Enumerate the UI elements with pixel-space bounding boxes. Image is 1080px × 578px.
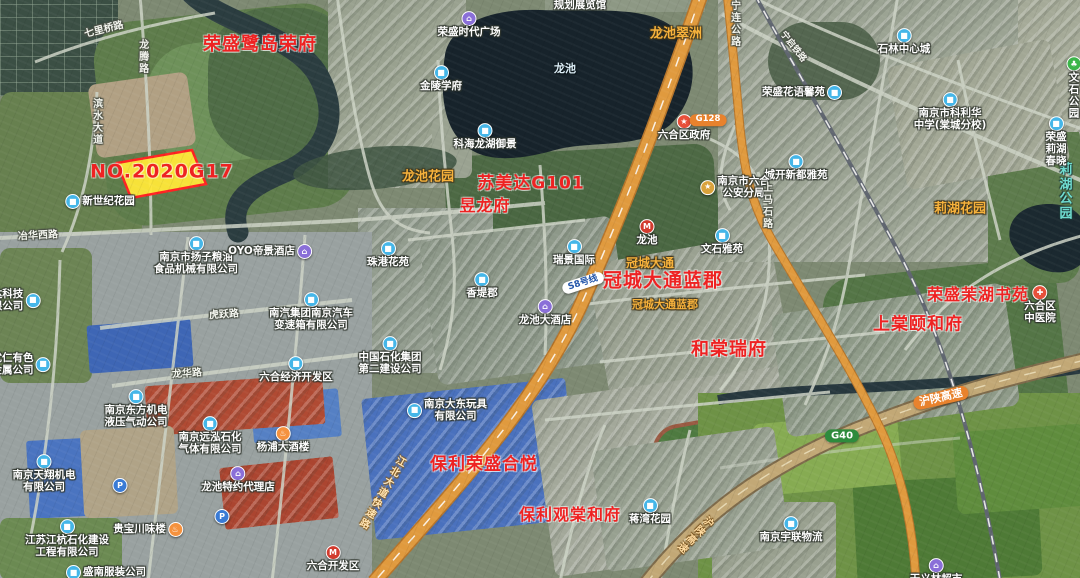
estate-yulongfu-text: 昱龙府: [459, 197, 510, 215]
parking-icon[interactable]: P: [215, 509, 230, 524]
building-icon[interactable]: ■: [66, 565, 81, 578]
estate-rongsheng-ludao-rongfu: 荣盛鹭岛荣府: [203, 35, 317, 55]
building-icon[interactable]: ■: [715, 228, 730, 243]
area-longchi-cuizhou[interactable]: 龙池翠洲: [650, 28, 702, 43]
area-guancheng-datong-text: 冠城大通: [626, 257, 674, 271]
road-shangmashi-lu: 上马石路: [760, 182, 771, 230]
poi-luhe-district-government-text: 六合区政府: [658, 130, 711, 142]
poi-rongsheng-lihu-chunxiao-text: 荣盛莉湖春晓: [1044, 132, 1068, 168]
badge-g128: G128: [690, 114, 727, 126]
area-longchi-huayuan[interactable]: 龙池花园: [402, 171, 454, 186]
satellite-map: 荣盛鹭岛荣府NO.2020G17苏美达G101昱龙府冠城大通蓝郡和棠瑞府荣盛茉湖…: [0, 0, 1080, 578]
building-icon[interactable]: ■: [942, 92, 957, 107]
metro-longchi-station-text: 龙池: [637, 235, 658, 247]
poi-rongsheng-huayu-xinyuan-text: 荣盛花语馨苑: [762, 87, 825, 99]
hotel-icon[interactable]: ⌂: [297, 244, 312, 259]
shop-icon[interactable]: ⌂: [231, 466, 246, 481]
estate-rongsheng-ludao-rongfu-text: 荣盛鹭岛荣府: [203, 35, 317, 55]
building-icon[interactable]: ■: [827, 85, 842, 100]
estate-sumeida-g101-text: 苏美达G101: [477, 174, 584, 193]
poi-yangpu-dajiulou-text: 杨浦大酒楼: [257, 442, 310, 454]
metro-longchi-station[interactable]: M龙池: [637, 219, 658, 247]
poi-youren-youse-jinshu-text: 优仁有色 金属公司: [0, 353, 34, 377]
poi-youren-youse-jinshu[interactable]: ■优仁有色 金属公司: [0, 353, 51, 377]
building-icon[interactable]: ■: [567, 239, 582, 254]
building-icon[interactable]: ■: [189, 236, 204, 251]
poi-tianyilin-chaoshi[interactable]: ⌂天义林超市: [910, 558, 963, 578]
estate-rongsheng-mohu-shuyuan: 荣盛茉湖书苑: [927, 286, 1029, 304]
metro-icon[interactable]: M: [640, 219, 655, 234]
building-icon[interactable]: ■: [36, 357, 51, 372]
restaurant-icon[interactable]: ♨: [168, 522, 183, 537]
poi-dongfang-jidian[interactable]: ■南京东方机电 液压气动公司: [105, 389, 168, 429]
poi-yulian-wuliu[interactable]: ■南京宇联物流: [760, 516, 823, 544]
poi-wenshi-gongyuan[interactable]: ♣文石公园: [1067, 56, 1080, 119]
shop-icon[interactable]: ⌂: [462, 11, 477, 26]
poi-parking-1[interactable]: P: [113, 478, 128, 494]
poi-longchi-teyue-dailidian-text: 龙池特约代理店: [201, 482, 275, 494]
poi-yuanhong-shihua[interactable]: ■南京远泓石化 气体有限公司: [179, 416, 242, 456]
poi-wenshi-yayuan-text: 文石雅苑: [701, 244, 743, 256]
building-icon[interactable]: ■: [289, 356, 304, 371]
estate-baoli-rongsheng-heyue-text: 保利荣盛合悦: [430, 455, 538, 474]
area-guancheng-datong-lanjun-small[interactable]: 冠城大通蓝郡: [632, 299, 698, 311]
poi-shengnan-fuzhuang-text: 盛南服装公司: [83, 567, 146, 578]
road-longteng-lu-text: 龙腾路: [136, 39, 147, 75]
hotel-icon[interactable]: ⌂: [538, 299, 553, 314]
park-lihu-gongyuan[interactable]: 莉湖公园: [1059, 164, 1073, 223]
building-icon[interactable]: ■: [304, 292, 319, 307]
poi-tianyilin-chaoshi-text: 天义林超市: [910, 574, 963, 578]
badge-s8-line-text: S8号线: [567, 273, 599, 292]
road-huyue-lu-text: 虎跃路: [209, 308, 240, 321]
estate-baoli-guantang-hefu: 保利观棠和府: [519, 506, 621, 524]
poi-tianxiang-jidian-text: 南京天翔机电 有限公司: [13, 470, 76, 494]
road-hushan-expwy-west: 沪陕高速: [673, 513, 715, 555]
estate-hetang-ruifu-text: 和棠瑞府: [691, 340, 767, 360]
road-ningqi-railway: 宁启铁路: [778, 30, 808, 65]
estate-baoli-rongsheng-heyue: 保利荣盛合悦: [430, 455, 538, 474]
road-binshui-dadao: 滨水大道: [90, 98, 101, 146]
area-guancheng-datong[interactable]: 冠城大通: [626, 257, 674, 271]
poi-shilin-zhongxincheng[interactable]: ■石林中心城: [878, 28, 931, 56]
poi-xinshiji-huayuan[interactable]: ■新世纪花园: [65, 194, 135, 210]
building-icon[interactable]: ■: [478, 123, 493, 138]
area-guancheng-datong-lanjun-small-text: 冠城大通蓝郡: [632, 299, 698, 311]
road-shangmashi-lu-text: 上马石路: [760, 182, 771, 230]
area-longchi-huayuan-text: 龙池花园: [402, 171, 454, 186]
poi-jianghang-shihua-text: 江苏江杭石化建设 工程有限公司: [25, 535, 109, 559]
road-binshui-dadao-text: 滨水大道: [90, 98, 101, 146]
building-icon[interactable]: ■: [37, 454, 52, 469]
poi-tianxiang-jidian[interactable]: ■南京天翔机电 有限公司: [13, 454, 76, 494]
building-icon[interactable]: ■: [407, 403, 422, 418]
road-qiliqiao-lu: 七里桥路: [83, 20, 125, 41]
poi-ruijing-guoji-text: 瑞景国际: [553, 255, 595, 267]
badge-g40-text: G40: [831, 430, 853, 441]
shop-icon[interactable]: ⌂: [929, 558, 944, 573]
road-qiliqiao-lu-text: 七里桥路: [83, 20, 125, 41]
badge-g40: G40: [825, 429, 859, 442]
poi-wenshi-gongyuan-text: 文石公园: [1067, 72, 1080, 119]
building-icon[interactable]: ■: [897, 28, 912, 43]
poi-oyo-dijing-hotel-text: OYO帝景酒店: [228, 246, 295, 258]
poi-kehai-longhu-yujing-text: 科海龙湖御景: [454, 139, 517, 151]
poi-luhe-gongan-fenju[interactable]: ★南京市六合 公安分局: [700, 176, 770, 200]
poi-luhe-zhongyiyuan[interactable]: ✚六合区 中医院: [1024, 285, 1056, 325]
poi-yangpu-dajiulou[interactable]: ♨杨浦大酒楼: [257, 426, 310, 454]
building-icon[interactable]: ■: [381, 241, 396, 256]
poi-guihua-zhanlanguan-text: 规划展览馆: [554, 0, 607, 12]
poi-luhe-jingji-kaifaqu-text: 六合经济开发区: [259, 372, 333, 384]
badge-hushan-expressway-text: 沪陕高速: [918, 387, 964, 409]
building-icon[interactable]: ■: [784, 516, 799, 531]
area-lihu-huayuan-text: 莉湖花园: [934, 203, 986, 218]
building-icon[interactable]: ■: [1049, 116, 1064, 131]
poi-chengkai-xindu-yayuan-text: 城开新都雅苑: [765, 170, 828, 182]
poi-xinshiji-huayuan-text: 新世纪花园: [82, 196, 135, 208]
estate-shangtang-yihefu: 上棠颐和府: [873, 315, 963, 334]
road-longteng-lu: 龙腾路: [136, 39, 147, 75]
poi-yulian-wuliu-text: 南京宇联物流: [760, 532, 823, 544]
poi-dongfang-jidian-text: 南京东方机电 液压气动公司: [105, 405, 168, 429]
building-icon[interactable]: ■: [129, 389, 144, 404]
road-huyue-lu: 虎跃路: [209, 308, 240, 321]
estate-yulongfu: 昱龙府: [459, 197, 510, 215]
poi-guibao-chuanweilou[interactable]: ♨贵宝川味楼: [113, 522, 183, 538]
road-ningqi-railway-text: 宁启铁路: [778, 30, 808, 65]
poi-rongsheng-huayu-xinyuan[interactable]: ■荣盛花语馨苑: [762, 85, 842, 101]
building-icon[interactable]: ■: [25, 293, 40, 308]
road-ninglian-gonglu: 宁连公路: [728, 0, 739, 48]
poi-jiangwan-huayuan-text: 蒋湾花园: [629, 514, 671, 526]
building-icon[interactable]: ■: [475, 272, 490, 287]
road-ninglian-gonglu-text: 宁连公路: [728, 0, 739, 48]
map-labels: 荣盛鹭岛荣府NO.2020G17苏美达G101昱龙府冠城大通蓝郡和棠瑞府荣盛茉湖…: [0, 0, 1080, 578]
poi-yangzi-liangyou-text: 南京市扬子粮油 食品机械有限公司: [154, 252, 238, 276]
poi-kelihua-middle-school-text: 南京市科利华 中学(棠城分校): [914, 108, 987, 132]
poi-yuanhong-shihua-text: 南京远泓石化 气体有限公司: [179, 432, 242, 456]
building-icon[interactable]: ■: [60, 519, 75, 534]
building-icon[interactable]: ■: [65, 194, 80, 209]
poi-jinling-xuefu[interactable]: ■金陵学府: [420, 65, 462, 93]
poi-rongsheng-shidai-guangchang[interactable]: ⌂荣盛时代广场: [438, 11, 501, 39]
park-icon[interactable]: ♣: [1067, 56, 1080, 71]
estate-rongsheng-mohu-shuyuan-text: 荣盛茉湖书苑: [927, 286, 1029, 304]
road-longhua-lu: 龙华路: [172, 367, 203, 380]
poi-jiangwan-huayuan[interactable]: ■蒋湾花园: [629, 498, 671, 526]
road-longhua-lu-text: 龙华路: [172, 367, 203, 380]
badge-hushan-expressway: 沪陕高速: [912, 385, 970, 412]
water-longchi-lake: 龙池: [554, 63, 576, 75]
estate-sumeida-g101: 苏美达G101: [477, 174, 584, 193]
poi-wenshi-yayuan[interactable]: ■文石雅苑: [701, 228, 743, 256]
poi-parking-2[interactable]: P: [215, 509, 230, 525]
building-icon[interactable]: ■: [434, 65, 449, 80]
metro-luhe-kaifaqu-station-text: 六合开发区: [307, 561, 360, 573]
poi-xunda-keji-clipped[interactable]: ■达科技 限公司: [0, 289, 40, 313]
estate-parcel-no2020g17: NO.2020G17: [90, 161, 234, 182]
restaurant-icon[interactable]: ♨: [276, 426, 291, 441]
road-yehua-xilu: 冶华西路: [18, 229, 59, 242]
estate-baoli-guantang-hefu-text: 保利观棠和府: [519, 506, 621, 524]
poi-dadong-wanju-text: 南京大东玩具 有限公司: [424, 399, 487, 423]
estate-guancheng-datong-lanjun: 冠城大通蓝郡: [603, 270, 723, 291]
estate-parcel-no2020g17-text: NO.2020G17: [90, 161, 234, 182]
poi-shengnan-fuzhuang[interactable]: ■盛南服装公司: [66, 565, 146, 578]
poi-jinling-xuefu-text: 金陵学府: [420, 81, 462, 93]
poi-jianghang-shihua[interactable]: ■江苏江杭石化建设 工程有限公司: [25, 519, 109, 559]
poi-luhe-jingji-kaifaqu[interactable]: ■六合经济开发区: [259, 356, 333, 384]
area-longchi-cuizhou-text: 龙池翠洲: [650, 28, 702, 43]
poi-chengkai-xindu-yayuan[interactable]: ■城开新都雅苑: [765, 154, 828, 182]
badge-s8-line: S8号线: [561, 271, 605, 296]
poi-zhongguo-shihua-dier[interactable]: ■中国石化集团 第二建设公司: [359, 336, 422, 376]
poi-zhugang-huayuan-text: 珠港花苑: [367, 257, 409, 269]
poi-ruijing-guoji[interactable]: ■瑞景国际: [553, 239, 595, 267]
water-longchi-lake-text: 龙池: [554, 63, 576, 75]
metro-icon[interactable]: M: [326, 545, 341, 560]
poi-kelihua-middle-school[interactable]: ■南京市科利华 中学(棠城分校): [914, 92, 987, 132]
poi-oyo-dijing-hotel[interactable]: ⌂OYO帝景酒店: [228, 244, 312, 260]
building-icon[interactable]: ■: [383, 336, 398, 351]
road-jiangbei-dadao-text: 江北大道快速路: [355, 453, 407, 531]
road-jiangbei-dadao: 江北大道快速路: [355, 453, 407, 531]
poi-guibao-chuanweilou-text: 贵宝川味楼: [113, 524, 166, 536]
poi-xunda-keji-clipped-text: 达科技 限公司: [0, 289, 23, 313]
poi-rongsheng-lihu-chunxiao[interactable]: ■荣盛莉湖春晓: [1044, 116, 1068, 168]
park-lihu-gongyuan-text: 莉湖公园: [1059, 164, 1073, 223]
poi-xiangdijun[interactable]: ■香堤郡: [466, 272, 498, 300]
poi-zhongguo-shihua-dier-text: 中国石化集团 第二建设公司: [359, 352, 422, 376]
building-icon[interactable]: ■: [789, 154, 804, 169]
poi-yangzi-liangyou[interactable]: ■南京市扬子粮油 食品机械有限公司: [154, 236, 238, 276]
estate-guancheng-datong-lanjun-text: 冠城大通蓝郡: [603, 270, 723, 291]
parking-icon[interactable]: P: [113, 478, 128, 493]
poi-longchi-dajiudian[interactable]: ⌂龙池大酒店: [519, 299, 572, 327]
poi-shilin-zhongxincheng-text: 石林中心城: [878, 44, 931, 56]
police-icon[interactable]: ★: [700, 180, 715, 195]
poi-longchi-teyue-dailidian[interactable]: ⌂龙池特约代理店: [201, 466, 275, 494]
area-lihu-huayuan[interactable]: 莉湖花园: [934, 203, 986, 218]
poi-xiangdijun-text: 香堤郡: [466, 288, 498, 300]
road-hushan-expwy-west-text: 沪陕高速: [673, 513, 715, 555]
estate-shangtang-yihefu-text: 上棠颐和府: [873, 315, 963, 334]
poi-dadong-wanju[interactable]: ■南京大东玩具 有限公司: [407, 399, 487, 423]
metro-luhe-kaifaqu-station[interactable]: M六合开发区: [307, 545, 360, 573]
building-icon[interactable]: ■: [643, 498, 658, 513]
poi-nanqi-bianshuxiang-text: 南汽集团南京汽车 变速箱有限公司: [269, 308, 353, 332]
building-icon[interactable]: ■: [203, 416, 218, 431]
poi-guihua-zhanlanguan[interactable]: 规划展览馆: [554, 0, 607, 12]
poi-rongsheng-shidai-guangchang-text: 荣盛时代广场: [438, 27, 501, 39]
poi-luhe-zhongyiyuan-text: 六合区 中医院: [1024, 301, 1056, 325]
poi-longchi-dajiudian-text: 龙池大酒店: [519, 315, 572, 327]
poi-zhugang-huayuan[interactable]: ■珠港花苑: [367, 241, 409, 269]
poi-nanqi-bianshuxiang[interactable]: ■南汽集团南京汽车 变速箱有限公司: [269, 292, 353, 332]
badge-g128-text: G128: [696, 115, 721, 125]
poi-kehai-longhu-yujing[interactable]: ■科海龙湖御景: [454, 123, 517, 151]
estate-hetang-ruifu: 和棠瑞府: [691, 340, 767, 360]
road-yehua-xilu-text: 冶华西路: [18, 229, 59, 242]
hospital-icon[interactable]: ✚: [1033, 285, 1048, 300]
